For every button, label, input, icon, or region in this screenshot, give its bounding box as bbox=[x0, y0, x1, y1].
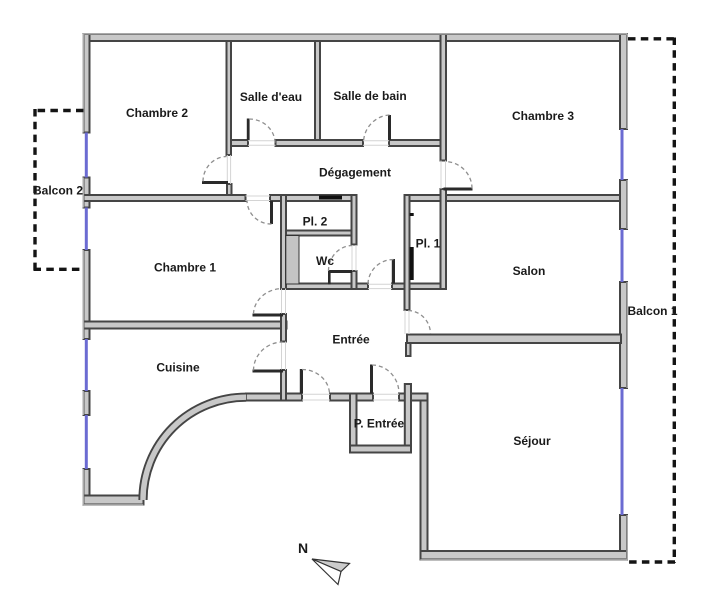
svg-text:Chambre 3: Chambre 3 bbox=[512, 109, 574, 123]
svg-text:Salle de bain: Salle de bain bbox=[333, 89, 406, 103]
svg-text:Wc: Wc bbox=[316, 254, 334, 268]
svg-text:Balcon 1: Balcon 1 bbox=[627, 304, 677, 318]
svg-text:Balcon 2: Balcon 2 bbox=[33, 184, 83, 198]
svg-text:Chambre 1: Chambre 1 bbox=[154, 261, 216, 275]
svg-text:Salle d'eau: Salle d'eau bbox=[240, 90, 302, 104]
svg-text:Entrée: Entrée bbox=[332, 333, 370, 347]
svg-text:N: N bbox=[298, 540, 308, 556]
svg-text:Pl. 2: Pl. 2 bbox=[303, 215, 328, 229]
svg-text:Séjour: Séjour bbox=[513, 434, 551, 448]
svg-text:Pl. 1: Pl. 1 bbox=[416, 237, 441, 251]
svg-text:P. Entrée: P. Entrée bbox=[354, 417, 405, 431]
svg-text:Cuisine: Cuisine bbox=[156, 361, 200, 375]
svg-text:Chambre 2: Chambre 2 bbox=[126, 106, 188, 120]
svg-text:Dégagement: Dégagement bbox=[319, 166, 391, 180]
svg-text:Salon: Salon bbox=[513, 264, 546, 278]
